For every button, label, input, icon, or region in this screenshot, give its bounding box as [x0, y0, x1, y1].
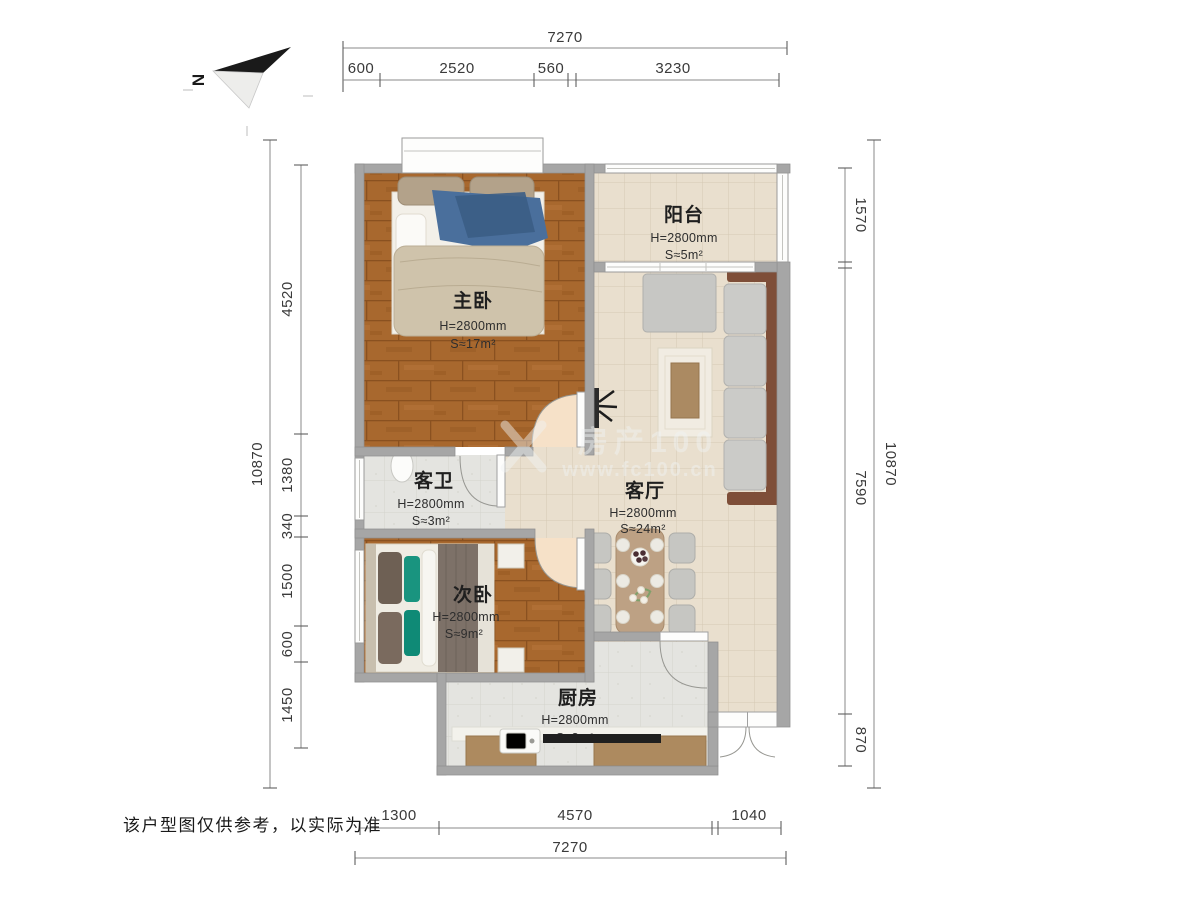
living-room-area: S≈24m² — [620, 522, 665, 536]
entry-double-door — [718, 712, 777, 757]
dimensions-bottom: 1300 4570 1040 7270 — [355, 807, 786, 865]
master-bed — [392, 177, 548, 336]
dim-right-seg-2: 870 — [852, 727, 869, 754]
dim-left-total: 10870 — [249, 442, 266, 486]
dim-bottom-seg-1: 4570 — [557, 807, 592, 824]
balcony-label: 阳台 — [664, 203, 704, 226]
kitchen-height: H=2800mm — [541, 713, 608, 727]
bathroom-window — [355, 458, 364, 520]
dim-left-seg-2: 340 — [279, 513, 296, 540]
chaise — [643, 274, 716, 332]
dim-top-total: 7270 — [547, 29, 582, 46]
master-bedroom-label: 主卧 — [453, 290, 493, 312]
dim-left-seg-4: 600 — [279, 631, 296, 658]
dim-bottom-total: 7270 — [552, 839, 587, 856]
watermark-line2: www.fc100.cn — [561, 459, 718, 481]
disclaimer-text: 该户型图仅供参考，以实际为准 — [123, 816, 382, 835]
dim-left-seg-0: 4520 — [279, 281, 296, 316]
second-bedroom-height: H=2800mm — [432, 610, 499, 624]
dimensions-top: 7270 600 2520 560 3230 — [343, 29, 787, 92]
north-arrow-light — [213, 71, 263, 108]
bathroom-label: 客卫 — [414, 469, 454, 492]
dim-left-seg-3: 1500 — [279, 563, 296, 598]
dim-top-seg-2: 560 — [538, 60, 565, 77]
floorplan-page: 房产100 www.fc100.cn 主卧 H=2800mm S≈17m² 阳台… — [0, 0, 1200, 900]
bathroom-height: H=2800mm — [397, 497, 464, 511]
bay-window — [402, 138, 543, 173]
bathroom-area: S≈3m² — [412, 514, 450, 528]
north-arrow: N — [183, 47, 313, 136]
dim-top-seg-1: 2520 — [439, 60, 474, 77]
cooktop-bar — [543, 734, 661, 743]
floorplan-canvas: 房产100 www.fc100.cn 主卧 H=2800mm S≈17m² 阳台… — [0, 0, 1200, 900]
balcony-area: S≈5m² — [665, 248, 703, 262]
dim-top-seg-0: 600 — [348, 60, 375, 77]
kitchen-label: 厨房 — [558, 686, 598, 709]
balcony-sliding-door — [605, 262, 755, 272]
dining-set — [585, 529, 695, 635]
dim-left-seg-1: 1380 — [279, 457, 296, 492]
dim-right-seg-1: 7590 — [852, 470, 869, 505]
second-bedroom-area: S≈9m² — [445, 627, 483, 641]
balcony-top-window — [605, 164, 777, 173]
north-arrow-dark — [213, 47, 291, 73]
dim-left-seg-5: 1450 — [279, 687, 296, 722]
dim-bottom-seg-0: 1300 — [381, 807, 416, 824]
teal-pillow — [404, 556, 420, 602]
master-bedroom-height: H=2800mm — [439, 319, 506, 333]
dim-right-total: 10870 — [882, 442, 899, 486]
dimensions-left: 10870 4520 1380 340 1500 600 1450 — [249, 140, 308, 788]
living-room-label: 客厅 — [625, 479, 665, 502]
watermark-line1: 房产100 — [578, 426, 718, 459]
north-label: N — [189, 74, 208, 86]
second-bedroom-window — [355, 550, 364, 643]
dim-top-seg-3: 3230 — [655, 60, 690, 77]
balcony-side-window — [777, 173, 788, 262]
second-bedroom-label: 次卧 — [453, 583, 493, 606]
dimensions-right: 1570 7590 870 10870 — [838, 140, 899, 788]
coffee-table — [658, 348, 712, 437]
living-room-height: H=2800mm — [609, 506, 676, 520]
dim-bottom-seg-2: 1040 — [731, 807, 766, 824]
dim-right-seg-0: 1570 — [852, 197, 869, 232]
balcony-height: H=2800mm — [650, 231, 717, 245]
teal-pillow — [404, 610, 420, 656]
master-bedroom-area: S≈17m² — [450, 337, 495, 351]
